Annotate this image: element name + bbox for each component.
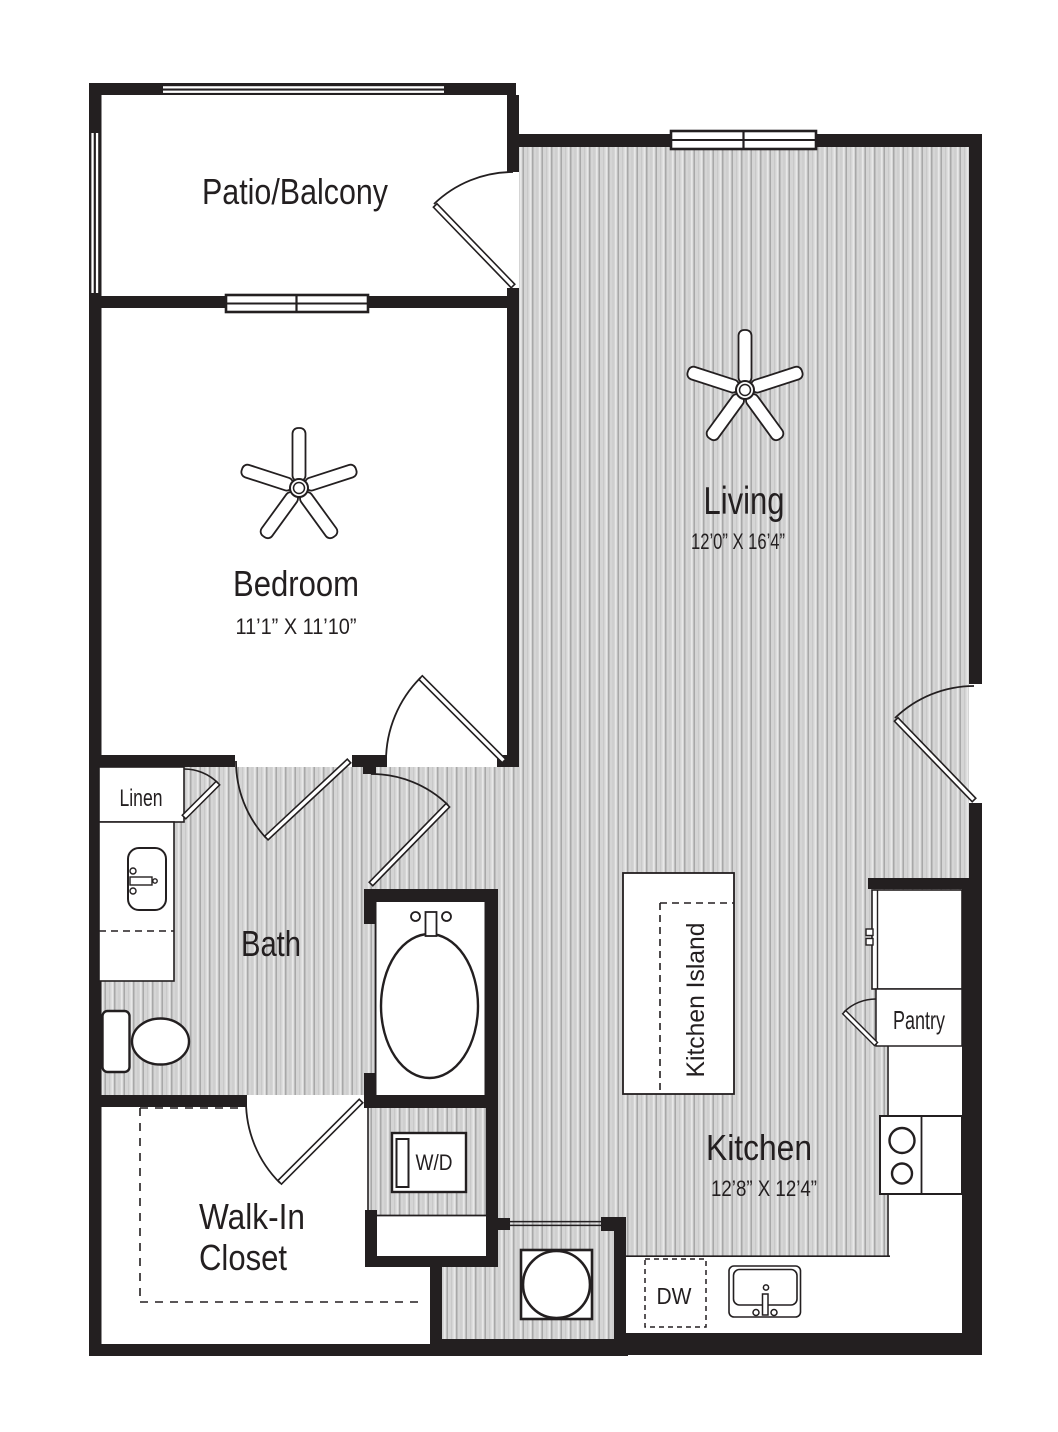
- svg-text:12’8” X 12’4”: 12’8” X 12’4”: [711, 1176, 817, 1201]
- svg-text:Linen: Linen: [120, 785, 163, 812]
- svg-text:Living: Living: [704, 480, 785, 523]
- svg-text:11’1” X 11’10”: 11’1” X 11’10”: [236, 614, 357, 639]
- svg-text:Kitchen Island: Kitchen Island: [682, 923, 710, 1078]
- svg-text:12’0” X 16’4”: 12’0” X 16’4”: [691, 529, 785, 554]
- svg-text:Patio/Balcony: Patio/Balcony: [202, 171, 388, 212]
- svg-text:DW: DW: [657, 1283, 692, 1309]
- svg-text:Closet: Closet: [199, 1237, 287, 1278]
- svg-text:Walk-In: Walk-In: [199, 1196, 305, 1237]
- svg-text:W/D: W/D: [416, 1150, 453, 1175]
- svg-text:Kitchen: Kitchen: [706, 1127, 812, 1168]
- svg-text:Pantry: Pantry: [893, 1005, 945, 1035]
- svg-text:Bath: Bath: [241, 923, 301, 964]
- svg-text:Bedroom: Bedroom: [233, 563, 359, 604]
